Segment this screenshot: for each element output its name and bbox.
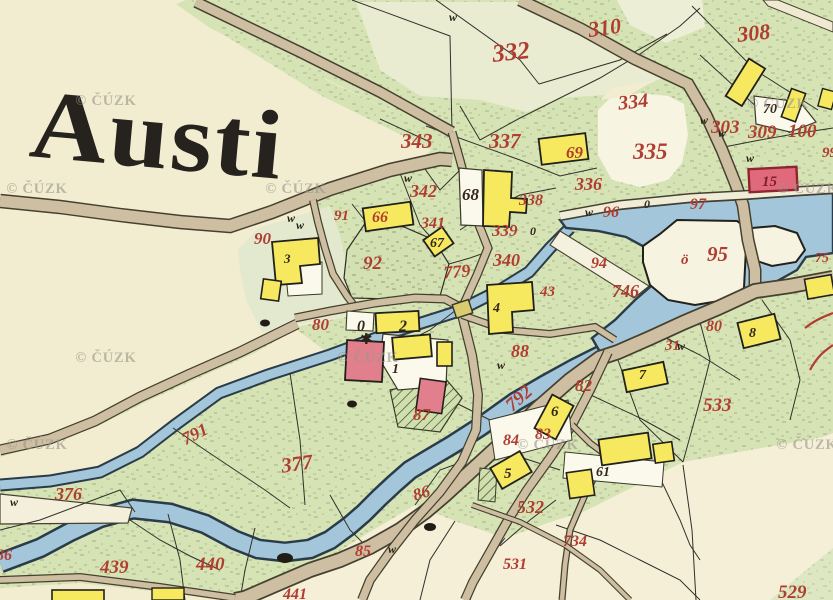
svg-text:© ČÚZK: © ČÚZK bbox=[337, 349, 398, 366]
svg-text:337: 337 bbox=[488, 129, 522, 153]
svg-text:0: 0 bbox=[644, 197, 650, 211]
svg-text:w: w bbox=[746, 151, 755, 165]
svg-text:334: 334 bbox=[616, 90, 649, 115]
svg-text:96: 96 bbox=[603, 204, 619, 221]
svg-text:341: 341 bbox=[420, 215, 445, 232]
svg-text:90: 90 bbox=[254, 229, 272, 248]
svg-text:© ČÚZK: © ČÚZK bbox=[265, 180, 326, 197]
svg-text:746: 746 bbox=[612, 281, 639, 301]
svg-text:w: w bbox=[10, 495, 19, 509]
svg-text:91: 91 bbox=[334, 208, 349, 224]
svg-text:82: 82 bbox=[575, 376, 593, 395]
svg-text:0: 0 bbox=[530, 224, 536, 238]
svg-text:85: 85 bbox=[355, 543, 371, 560]
svg-text:92: 92 bbox=[363, 253, 383, 274]
svg-text:© ČÚZK: © ČÚZK bbox=[777, 180, 833, 197]
svg-text:66: 66 bbox=[372, 209, 388, 226]
svg-text:95: 95 bbox=[707, 242, 728, 266]
svg-text:© ČÚZK: © ČÚZK bbox=[747, 95, 808, 112]
svg-text:w: w bbox=[718, 126, 727, 140]
svg-text:3: 3 bbox=[283, 251, 291, 266]
svg-text:ö: ö bbox=[681, 252, 689, 268]
svg-text:332: 332 bbox=[490, 37, 531, 68]
svg-text:67: 67 bbox=[430, 236, 445, 251]
svg-text:0: 0 bbox=[357, 318, 365, 335]
svg-text:734: 734 bbox=[563, 533, 587, 550]
svg-text:94: 94 bbox=[591, 255, 607, 272]
svg-text:8: 8 bbox=[749, 326, 756, 341]
svg-text:529: 529 bbox=[778, 582, 807, 600]
svg-text:w: w bbox=[700, 113, 709, 127]
svg-text:© ČÚZK: © ČÚZK bbox=[517, 436, 578, 453]
svg-text:310: 310 bbox=[585, 13, 622, 42]
svg-text:© ČÚZK: © ČÚZK bbox=[75, 92, 136, 109]
svg-text:440: 440 bbox=[195, 554, 225, 575]
svg-text:340: 340 bbox=[492, 250, 520, 270]
svg-text:w: w bbox=[296, 218, 305, 232]
svg-text:533: 533 bbox=[703, 395, 732, 416]
svg-text:© ČÚZK: © ČÚZK bbox=[6, 436, 67, 453]
svg-text:99: 99 bbox=[822, 145, 833, 161]
svg-text:342: 342 bbox=[409, 181, 437, 201]
svg-text:68: 68 bbox=[462, 185, 480, 204]
svg-text:69: 69 bbox=[566, 143, 584, 162]
svg-text:75: 75 bbox=[815, 251, 829, 266]
svg-text:308: 308 bbox=[735, 19, 771, 47]
svg-text:80: 80 bbox=[312, 315, 330, 334]
svg-text:w: w bbox=[404, 171, 413, 185]
svg-text:w: w bbox=[497, 358, 506, 372]
svg-text:336: 336 bbox=[574, 174, 602, 194]
svg-text:© ČÚZK: © ČÚZK bbox=[6, 180, 67, 197]
svg-text:6: 6 bbox=[551, 404, 559, 420]
svg-text:5: 5 bbox=[504, 466, 512, 482]
svg-text:335: 335 bbox=[632, 139, 668, 164]
svg-text:441: 441 bbox=[282, 586, 307, 600]
svg-text:87: 87 bbox=[413, 405, 432, 424]
svg-text:86: 86 bbox=[0, 547, 12, 564]
svg-text:339: 339 bbox=[491, 221, 518, 240]
svg-text:779: 779 bbox=[443, 260, 472, 282]
svg-text:w: w bbox=[677, 339, 686, 353]
svg-text:309: 309 bbox=[747, 122, 777, 143]
svg-text:377: 377 bbox=[279, 449, 316, 477]
svg-text:w: w bbox=[388, 542, 397, 556]
svg-text:338: 338 bbox=[518, 192, 543, 209]
svg-text:2: 2 bbox=[398, 318, 407, 335]
svg-text:4: 4 bbox=[492, 301, 500, 316]
svg-text:© ČÚZK: © ČÚZK bbox=[776, 436, 833, 453]
svg-text:97: 97 bbox=[690, 196, 707, 213]
svg-text:© ČÚZK: © ČÚZK bbox=[75, 349, 136, 366]
svg-text:w: w bbox=[585, 205, 594, 219]
svg-text:w: w bbox=[449, 10, 458, 24]
svg-text:532: 532 bbox=[517, 497, 544, 517]
svg-text:88: 88 bbox=[511, 341, 529, 361]
svg-text:15: 15 bbox=[762, 174, 778, 190]
svg-text:7: 7 bbox=[639, 368, 647, 383]
svg-text:43: 43 bbox=[539, 284, 556, 300]
svg-text:80: 80 bbox=[706, 318, 722, 335]
svg-text:531: 531 bbox=[503, 556, 527, 573]
svg-text:439: 439 bbox=[99, 557, 129, 578]
svg-text:376: 376 bbox=[54, 484, 82, 504]
svg-text:100: 100 bbox=[788, 121, 817, 142]
svg-text:343: 343 bbox=[400, 129, 433, 153]
svg-text:61: 61 bbox=[596, 465, 610, 480]
svg-text:w: w bbox=[287, 211, 296, 225]
